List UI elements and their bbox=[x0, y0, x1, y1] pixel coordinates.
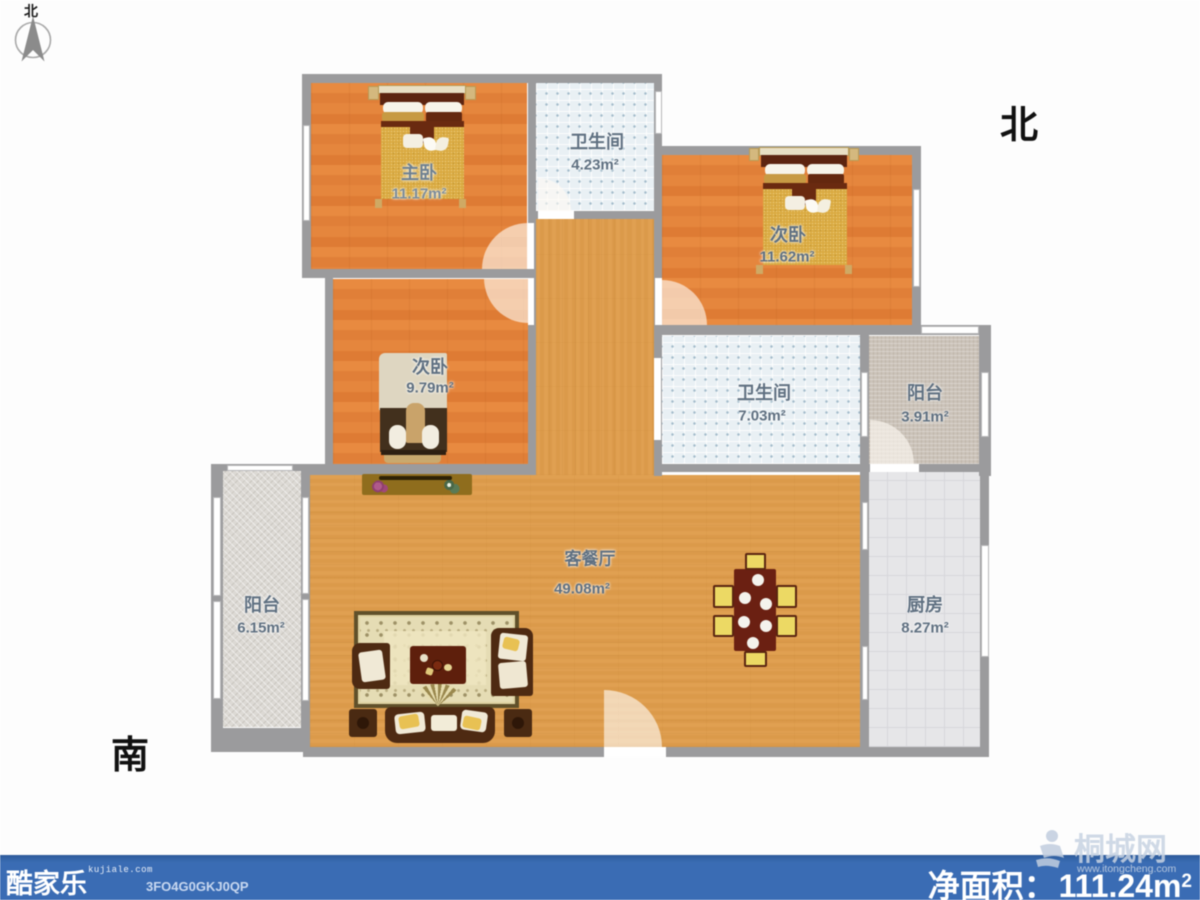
svg-text:www.itongcheng.com: www.itongcheng.com bbox=[1076, 863, 1176, 875]
svg-text:桐城网: 桐城网 bbox=[1074, 832, 1167, 867]
